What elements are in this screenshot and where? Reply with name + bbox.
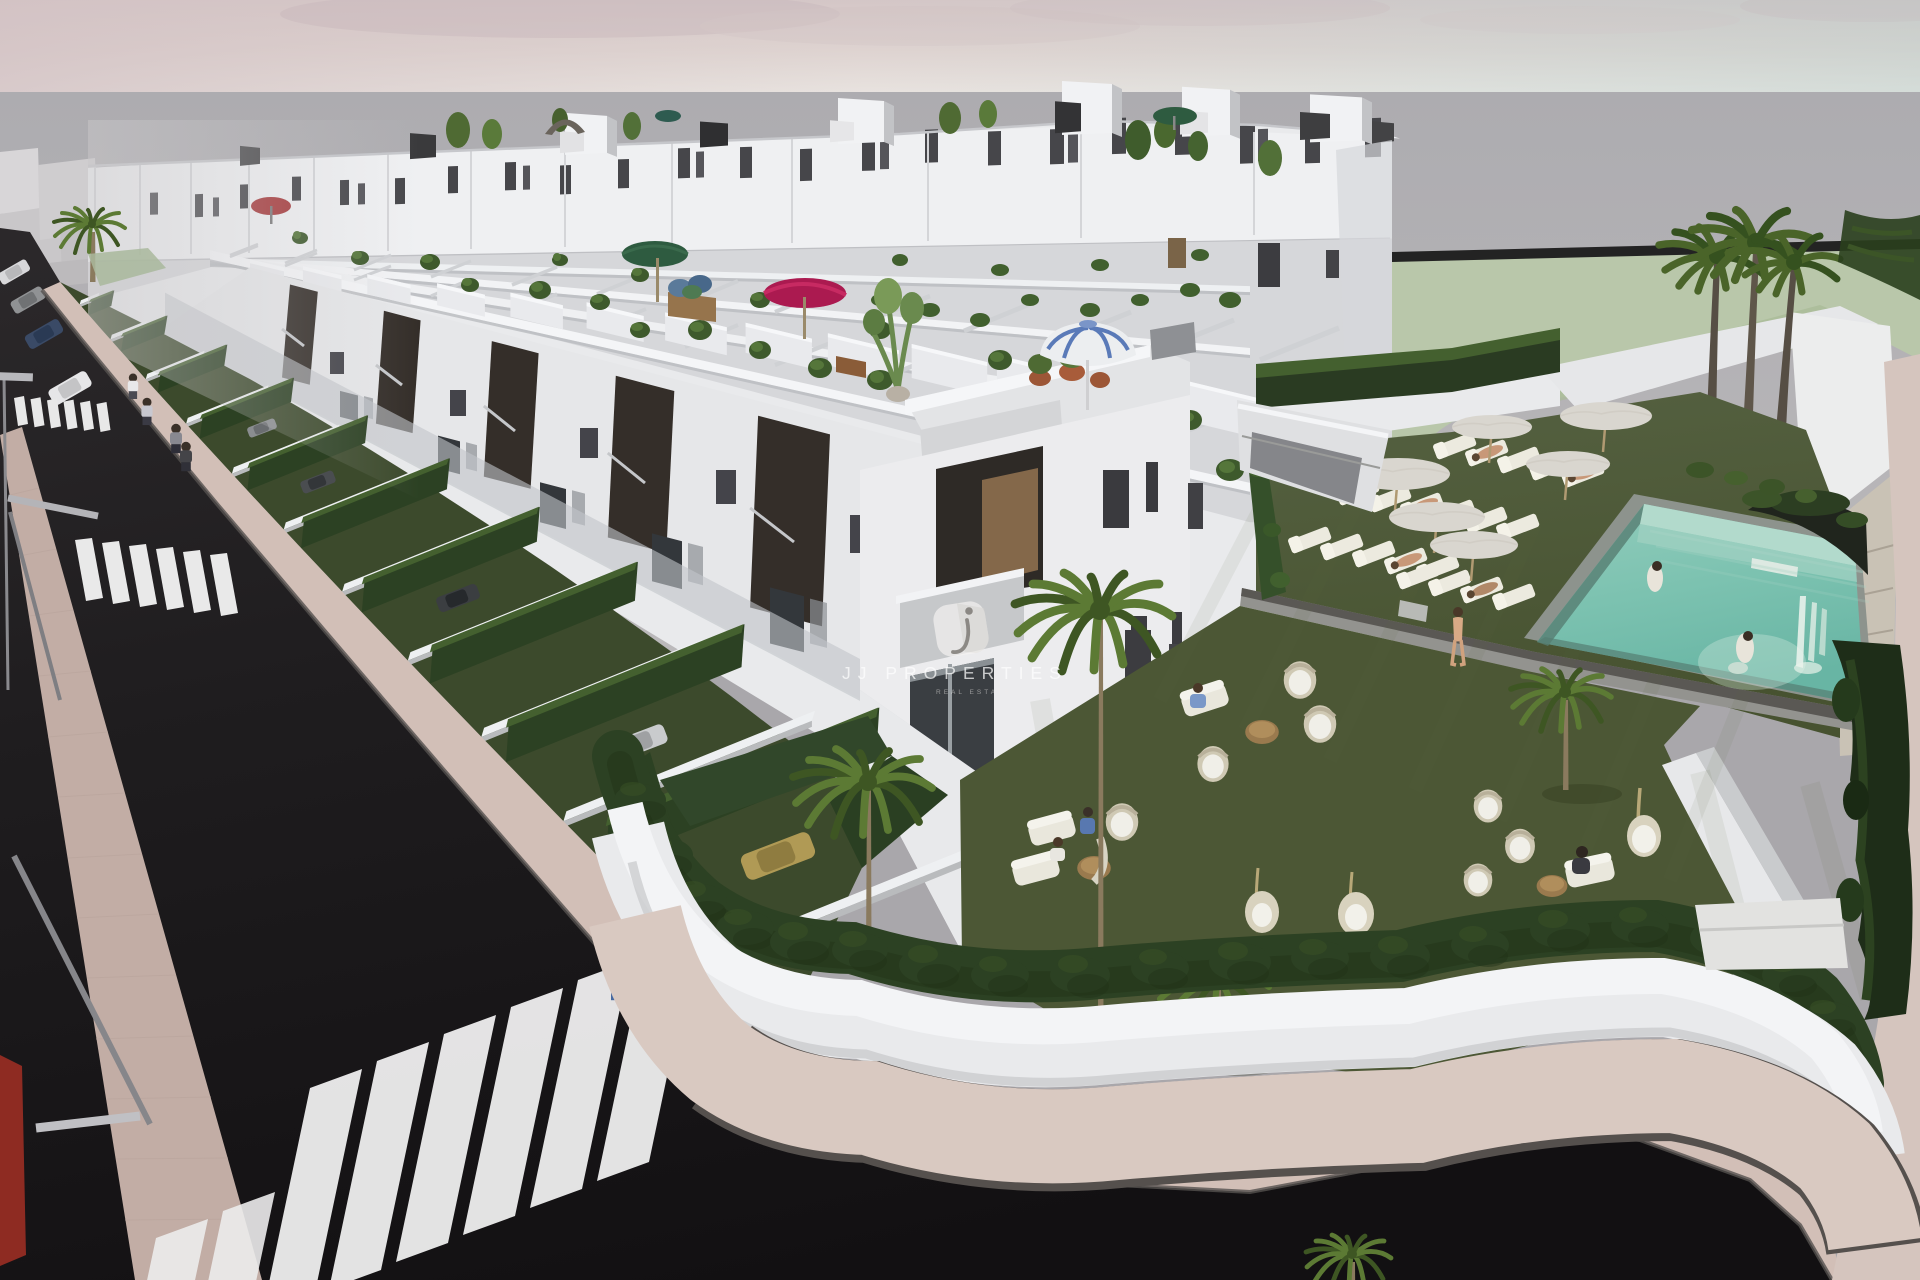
svg-text:REAL ESTATE: REAL ESTATE [936, 689, 1012, 696]
svg-text:JJ PROPERTIES: JJ PROPERTIES [842, 663, 1068, 683]
